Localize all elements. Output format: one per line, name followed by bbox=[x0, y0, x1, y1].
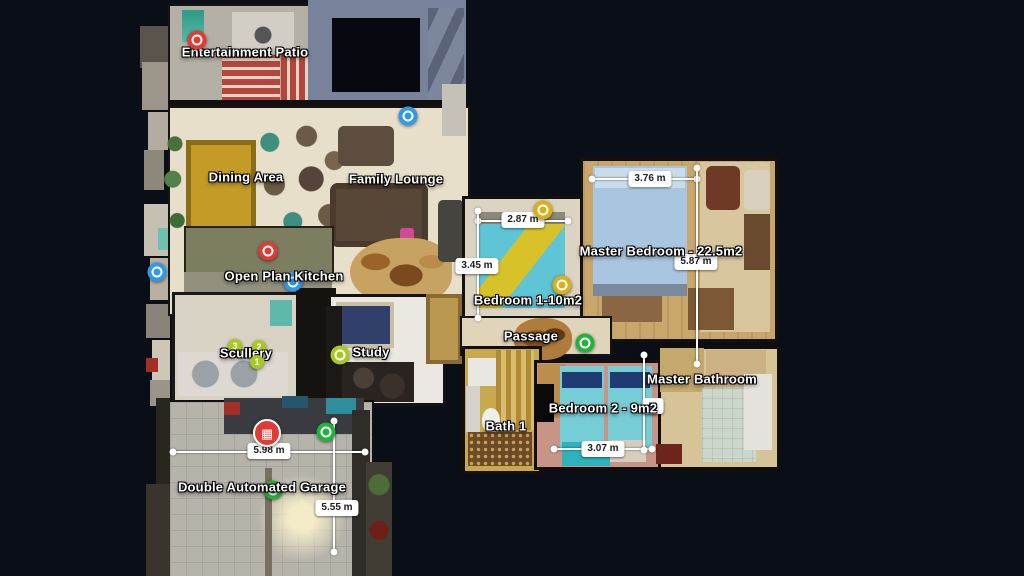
floorplan-region bbox=[744, 214, 770, 270]
floorplan-region bbox=[146, 358, 158, 372]
marker-tag-passage[interactable] bbox=[576, 334, 595, 353]
room-label-bath-1: Bath 1 bbox=[486, 420, 527, 435]
floorplan-region bbox=[656, 444, 682, 464]
floorplan-region bbox=[688, 288, 734, 330]
measurement-endpoint-dot bbox=[589, 176, 596, 183]
measurement-endpoint-dot bbox=[331, 549, 338, 556]
measurement-endpoint-dot bbox=[641, 447, 648, 454]
floorplan-region bbox=[426, 294, 462, 364]
measurement-value-garage-depth: 5.55 m bbox=[315, 500, 358, 516]
room-label-bedroom-2: Bedroom 2 - 9m2 bbox=[549, 402, 657, 417]
floorplan-region bbox=[144, 150, 164, 190]
floorplan-region bbox=[332, 18, 420, 92]
marker-tag-garage[interactable] bbox=[317, 423, 336, 442]
measurement-endpoint-dot bbox=[694, 165, 701, 172]
floorplan-region bbox=[338, 126, 394, 166]
floorplan-region bbox=[706, 166, 740, 210]
floorplan-region bbox=[466, 386, 480, 432]
marker-tag-left-edge[interactable] bbox=[148, 263, 167, 282]
measurement-endpoint-dot bbox=[649, 446, 656, 453]
floorplan-region bbox=[282, 396, 308, 408]
floorplan-region bbox=[468, 358, 496, 386]
measurement-endpoint-dot bbox=[694, 361, 701, 368]
measurement-value-bedroom1-depth: 3.45 m bbox=[455, 258, 498, 274]
room-label-master-bathroom: Master Bathroom bbox=[647, 373, 757, 388]
marker-tag-bedroom1-top[interactable] bbox=[534, 201, 553, 220]
room-label-passage: Passage bbox=[504, 330, 558, 345]
measurement-endpoint-dot bbox=[551, 446, 558, 453]
marker-tag-family-lounge[interactable] bbox=[399, 107, 418, 126]
floorplan-region bbox=[562, 372, 602, 388]
floorplan-region bbox=[224, 402, 240, 415]
measurement-endpoint-dot bbox=[475, 208, 482, 215]
room-label-family-lounge: Family Lounge bbox=[349, 173, 443, 188]
room-label-master-bedroom: Master Bedroom - 22.5m2 bbox=[580, 245, 743, 260]
room-label-bedroom-1: Bedroom 1-10m2 bbox=[474, 294, 582, 309]
room-label-dining-area: Dining Area bbox=[209, 171, 284, 186]
measurement-endpoint-dot bbox=[170, 449, 177, 456]
floorplan-region bbox=[146, 484, 170, 576]
measurement-value-bedroom2-width: 3.07 m bbox=[581, 441, 624, 457]
measurement-endpoint-dot bbox=[362, 449, 369, 456]
floorplan-region bbox=[468, 432, 532, 466]
floorplan-region bbox=[366, 462, 392, 576]
marker-tag-garage-view[interactable]: ▦ bbox=[253, 419, 281, 447]
marker-tag-scullery-1[interactable]: 1 bbox=[250, 355, 264, 369]
floorplan-region bbox=[593, 284, 687, 296]
measurement-endpoint-dot bbox=[475, 315, 482, 322]
floorplan-region bbox=[164, 132, 186, 250]
floorplan-region bbox=[222, 55, 280, 103]
marker-tag-bedroom1[interactable] bbox=[553, 276, 572, 295]
floorplan-region bbox=[342, 362, 414, 402]
measurement-value-master-width: 3.76 m bbox=[628, 171, 671, 187]
measurement-endpoint-dot bbox=[641, 352, 648, 359]
floorplan-view[interactable]: 2.87 m3.45 m3.76 m5.87 m5.98 m5.55 m3.07… bbox=[0, 0, 1024, 576]
room-label-scullery: Scullery bbox=[220, 347, 272, 362]
floorplan-region bbox=[270, 300, 292, 326]
floorplan-region bbox=[438, 200, 464, 262]
floorplan-region bbox=[336, 302, 394, 348]
measurement-endpoint-dot bbox=[565, 218, 572, 225]
room-label-double-automated-garage: Double Automated Garage bbox=[178, 481, 346, 496]
floorplan-region bbox=[146, 304, 170, 338]
marker-tag-open-plan-kitchen[interactable] bbox=[259, 242, 278, 261]
marker-tag-entertainment-patio[interactable] bbox=[188, 31, 207, 50]
floorplan-region bbox=[744, 170, 770, 210]
room-label-study: Study bbox=[352, 346, 389, 361]
marker-tag-study[interactable] bbox=[331, 346, 350, 365]
floorplan-region bbox=[442, 84, 466, 136]
room-label-open-plan-kitchen: Open Plan Kitchen bbox=[225, 270, 344, 285]
